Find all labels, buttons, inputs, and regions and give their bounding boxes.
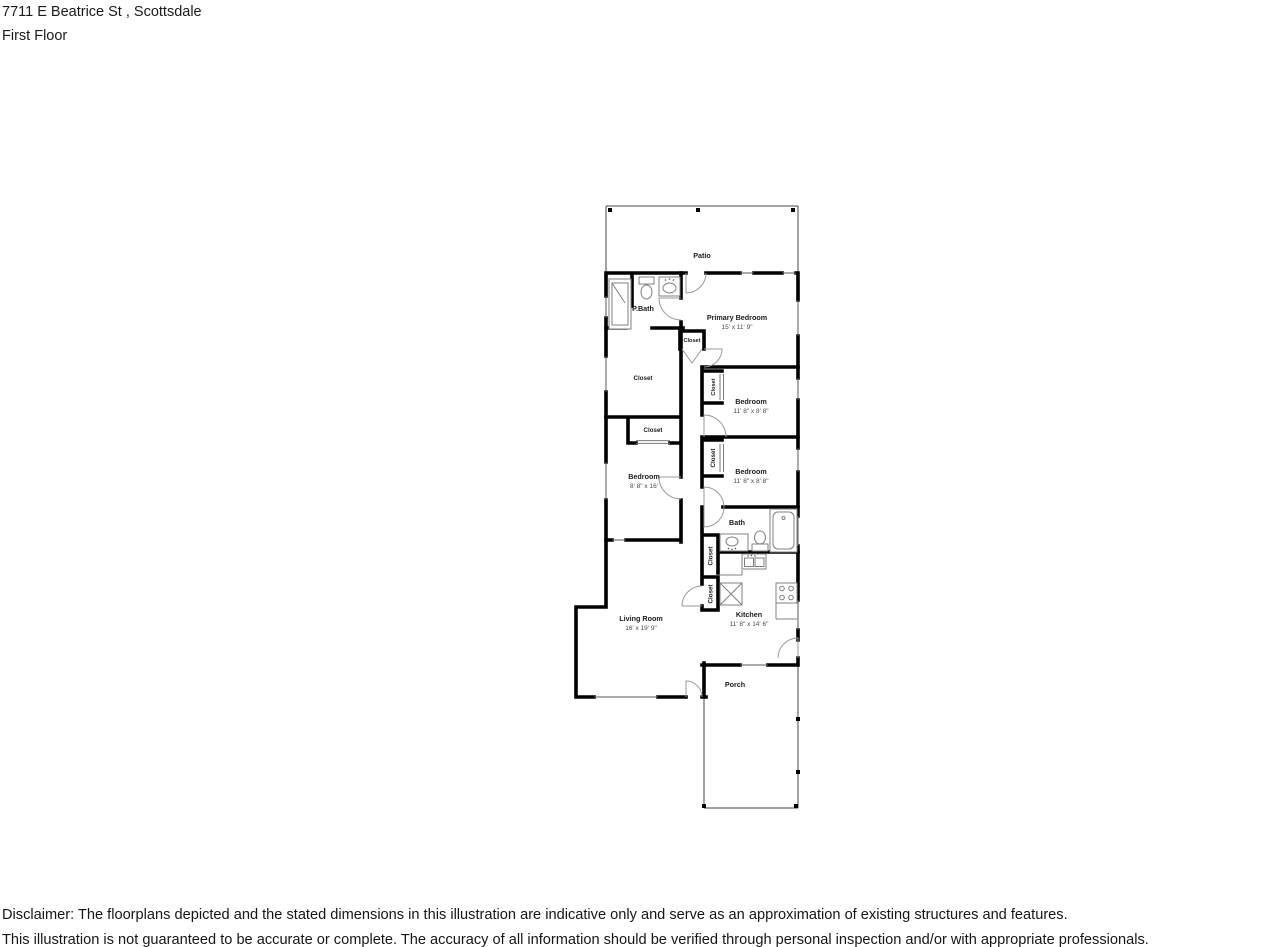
windows xyxy=(594,273,798,697)
porch-outline xyxy=(702,665,800,808)
patio-post xyxy=(696,208,700,212)
door-swing-kitchen-side xyxy=(778,638,798,658)
door-swing-bedroom-left xyxy=(659,477,681,499)
faucet-dot xyxy=(669,278,671,280)
closet-label-hall-upper: Closet xyxy=(708,547,715,566)
faucet-dot xyxy=(735,548,737,550)
toilet-bowl xyxy=(641,285,652,299)
door-swing-bedroom-upper xyxy=(704,415,726,437)
room-label-porch: Porch xyxy=(725,680,745,689)
faucet-dot xyxy=(728,548,730,550)
faucet-dot xyxy=(747,555,749,557)
sink-basin xyxy=(663,283,676,293)
room-dims-bedroom-lower: 11' 8" x 8' 8" xyxy=(733,478,769,485)
kitchen-sink-basin xyxy=(745,558,754,567)
room-label-pbath: P.Bath xyxy=(632,304,654,313)
closet-label-hall-top: Closet xyxy=(683,338,700,344)
faucet-dot xyxy=(751,555,753,557)
room-label-bedroom-lower: Bedroom xyxy=(735,467,767,476)
porch-post xyxy=(796,717,800,721)
page: 7711 E Beatrice St , Scottsdale First Fl… xyxy=(0,0,1262,947)
door-swing-patio-primary xyxy=(686,273,706,293)
patio-outline xyxy=(606,206,798,273)
room-dims-primary-bedroom: 15' x 11' 9" xyxy=(721,324,753,331)
disclaimer: Disclaimer: The floorplans depicted and … xyxy=(2,903,1149,947)
burner xyxy=(789,586,794,591)
door-swing-hall-primary xyxy=(704,349,722,367)
closet-label-middle: Closet xyxy=(644,427,663,434)
faucet-dot xyxy=(731,549,733,551)
door-swing-pbath xyxy=(659,298,681,320)
faucet-dot xyxy=(754,555,756,557)
room-dims-bedroom-left: 8' 8" x 16' xyxy=(630,483,658,490)
bifold-hall-closet-top xyxy=(682,349,702,363)
pbath-fixtures xyxy=(609,277,680,329)
door-swing-hall-closet-lower xyxy=(682,586,702,606)
room-label-bedroom-left: Bedroom xyxy=(628,472,660,481)
toilet-bowl xyxy=(755,531,766,544)
patio-post xyxy=(608,208,612,212)
toilet-tank xyxy=(752,544,768,551)
kitchen-sink-basin xyxy=(755,558,764,567)
disclaimer-line-1: Disclaimer: The floorplans depicted and … xyxy=(2,903,1149,928)
room-dims-bedroom-upper: 11' 8" x 8' 8" xyxy=(733,408,769,415)
disclaimer-line-2: This illustration is not guaranteed to b… xyxy=(2,928,1149,947)
room-label-primary-bedroom: Primary Bedroom xyxy=(707,313,767,322)
door-swing-entry xyxy=(686,681,702,697)
room-label-bedroom-upper: Bedroom xyxy=(735,397,767,406)
porch-post xyxy=(702,804,706,808)
room-label-bath: Bath xyxy=(729,518,745,527)
faucet-dot xyxy=(673,279,675,281)
burner xyxy=(780,586,785,591)
stove xyxy=(776,583,797,603)
bath-fixtures xyxy=(720,509,797,552)
exterior-walls xyxy=(576,273,798,697)
floor-title: First Floor xyxy=(2,24,202,48)
closet-label-bedroom-lower: Closet xyxy=(710,449,717,468)
room-label-living-room: Living Room xyxy=(619,614,663,623)
patio-post xyxy=(791,208,795,212)
door-swing-bedroom-lower xyxy=(704,487,724,507)
address-title: 7711 E Beatrice St , Scottsdale xyxy=(2,0,202,24)
plan-header: 7711 E Beatrice St , Scottsdale First Fl… xyxy=(2,0,202,48)
sink-basin xyxy=(726,537,738,546)
interior-walls xyxy=(606,273,798,610)
room-dims-kitchen: 11' 8" x 14' 6" xyxy=(730,621,769,628)
closet-label-bedroom-upper: Closet xyxy=(711,378,717,395)
room-dims-living-room: 16' x 19' 9" xyxy=(625,625,657,632)
room-label-patio: Patio xyxy=(693,251,711,260)
room-label-kitchen: Kitchen xyxy=(736,610,762,619)
closet-label-hall-lower: Closet xyxy=(708,585,715,604)
bathtub-inner xyxy=(773,512,794,549)
floorplan-drawing: Patio P.Bath Primary Bedroom 15' x 11' 9… xyxy=(556,195,826,835)
toilet-tank xyxy=(639,277,654,284)
door-swing-bath xyxy=(704,507,724,527)
faucet-dot xyxy=(665,279,667,281)
shower-pan xyxy=(612,283,628,325)
closet-label-walk-in: Closet xyxy=(634,375,653,382)
burner xyxy=(789,595,794,600)
porch-post xyxy=(794,804,798,808)
burner xyxy=(780,595,785,600)
porch-post xyxy=(796,770,800,774)
